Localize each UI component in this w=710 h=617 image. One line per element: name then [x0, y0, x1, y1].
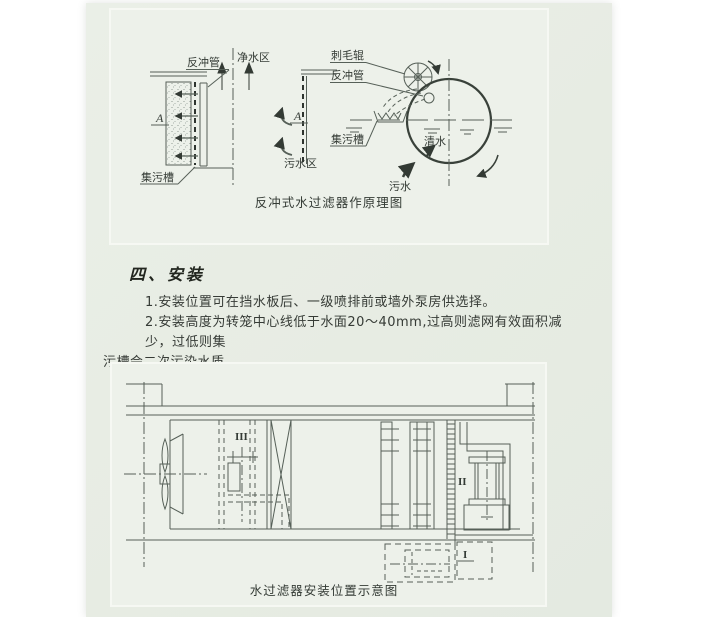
leader-line — [366, 63, 405, 75]
label-item-iii: III — [235, 431, 248, 443]
label-dirt-trough-right: 集污槽 — [331, 132, 364, 146]
grille-1 — [381, 422, 399, 529]
label-item-i: I — [463, 549, 467, 561]
paragraph-1: 1.安装位置可在挡水板后、一级喷排前或墙外泵房供选择。 — [103, 293, 565, 313]
grille-2 — [410, 422, 434, 529]
figure-principle: 反冲管 净水区 A A 污水区 集污槽 — [109, 8, 549, 245]
label-item-ii: II — [458, 476, 467, 488]
backwash-pipe-circle — [424, 93, 434, 103]
wheel-spokes — [404, 63, 432, 91]
ladder-band — [447, 420, 455, 539]
label-sewage: 污水 — [389, 180, 411, 193]
installation-section: 四、安装 1.安装位置可在挡水板后、一级喷排前或墙外泵房供选择。 2.安装高度为… — [103, 265, 565, 373]
equipment-iii — [227, 447, 289, 529]
leader-line — [178, 167, 195, 184]
pump-pit-dashed — [385, 542, 492, 582]
cross-braced-frame — [267, 420, 291, 529]
principle-diagram: 反冲管 净水区 A A 污水区 集污槽 — [111, 10, 547, 243]
figure-layout: III II I 水过滤器安装位置示意图 — [110, 362, 547, 607]
aerator-fan — [124, 434, 207, 514]
paragraph-2-line-1: 2.安装高度为转笼中心线低于水面20～40mm,过高则滤网有效面积减少，过低则集 — [103, 313, 565, 353]
figure-layout-caption: 水过滤器安装位置示意图 — [250, 583, 399, 598]
leader-line — [366, 121, 377, 146]
label-clean-water: 清水 — [424, 135, 446, 148]
label-backwash-pipe: 反冲管 — [187, 55, 220, 69]
water-level-marks — [346, 128, 512, 134]
up-flow-arrows — [218, 63, 253, 90]
label-backwash-pipe-2: 反冲管 — [331, 68, 364, 82]
layout-diagram: III II I 水过滤器安装位置示意图 — [112, 364, 545, 605]
figure-principle-caption: 反冲式水过滤器作原理图 — [255, 195, 404, 210]
water-filter-unit — [464, 451, 509, 530]
trough-hatch — [378, 113, 401, 119]
scanned-document: 反冲管 净水区 A A 污水区 集污槽 — [0, 0, 710, 617]
spray-arcs — [382, 89, 425, 116]
label-clean-water-zone: 净水区 — [237, 50, 270, 64]
section-heading: 四、安装 — [129, 265, 565, 285]
label-section-a-left: A — [155, 111, 164, 125]
label-dirt-trough-left: 集污槽 — [141, 170, 174, 184]
label-section-a-right: A — [293, 109, 302, 123]
label-sewage-zone: 污水区 — [284, 157, 317, 170]
label-brush-roller: 刺毛辊 — [331, 48, 364, 62]
inflow-curved-arrows — [281, 109, 292, 155]
filter-chamber-wall — [460, 422, 510, 530]
layout-plan — [124, 382, 535, 582]
